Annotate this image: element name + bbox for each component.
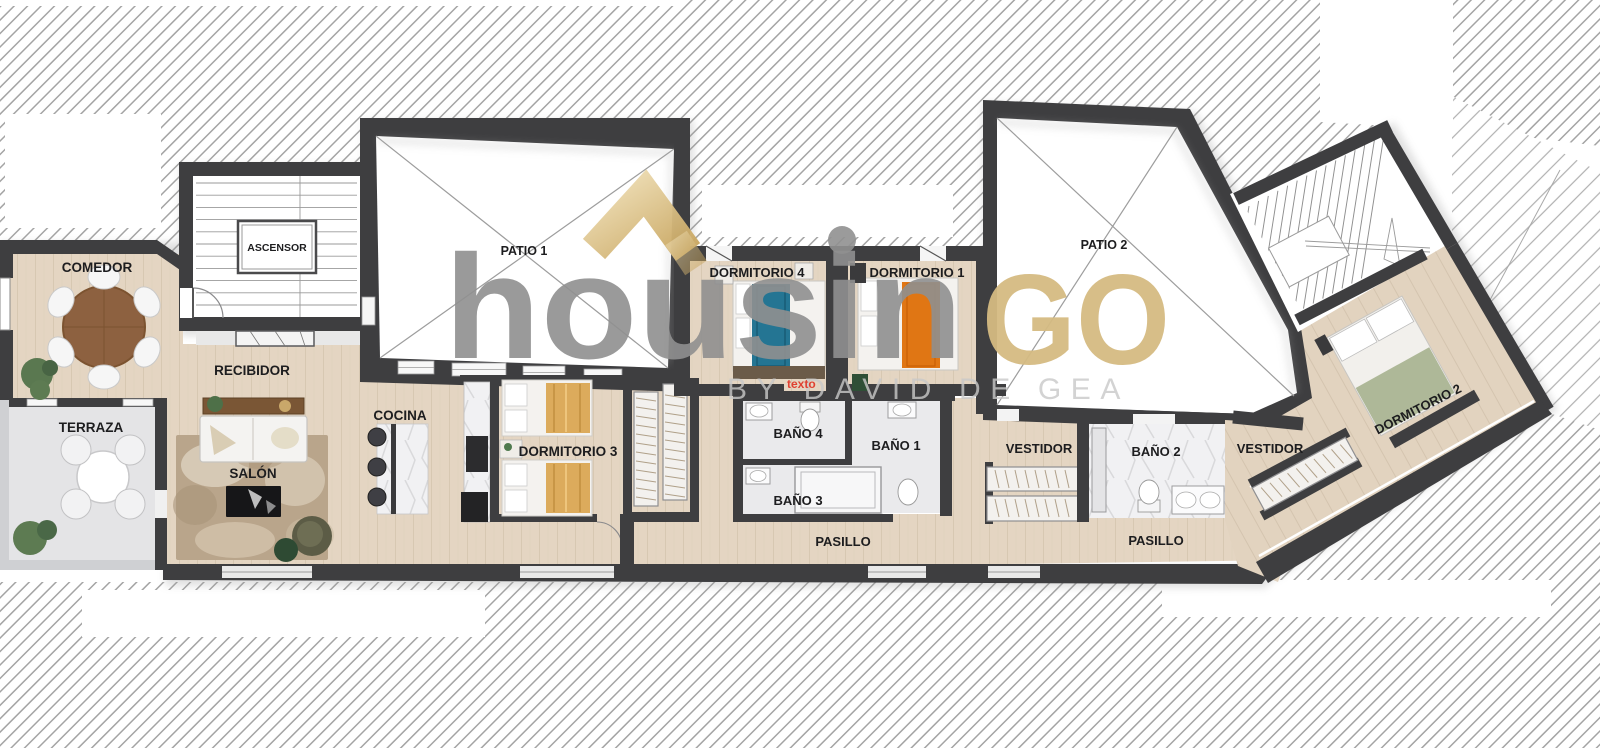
svg-text:COMEDOR: COMEDOR [62, 260, 133, 275]
svg-text:BAÑO 4: BAÑO 4 [773, 426, 823, 441]
svg-text:TERRAZA: TERRAZA [59, 420, 124, 435]
svg-text:PASILLO: PASILLO [1128, 533, 1183, 548]
svg-text:COCINA: COCINA [373, 408, 426, 423]
svg-text:texto: texto [787, 377, 816, 391]
svg-text:DORMITORIO 3: DORMITORIO 3 [519, 444, 618, 459]
svg-text:BAÑO 2: BAÑO 2 [1131, 444, 1180, 459]
svg-text:ASCENSOR: ASCENSOR [247, 242, 307, 254]
svg-text:BAÑO 3: BAÑO 3 [773, 493, 822, 508]
svg-text:VESTIDOR: VESTIDOR [1006, 441, 1073, 456]
svg-text:housin: housin [444, 225, 963, 390]
svg-text:BAÑO 1: BAÑO 1 [871, 438, 920, 453]
svg-text:RECIBIDOR: RECIBIDOR [214, 363, 290, 378]
svg-text:VESTIDOR: VESTIDOR [1237, 441, 1304, 456]
svg-text:SALÓN: SALÓN [229, 466, 276, 481]
svg-text:PASILLO: PASILLO [815, 534, 870, 549]
svg-text:GO: GO [982, 249, 1170, 392]
